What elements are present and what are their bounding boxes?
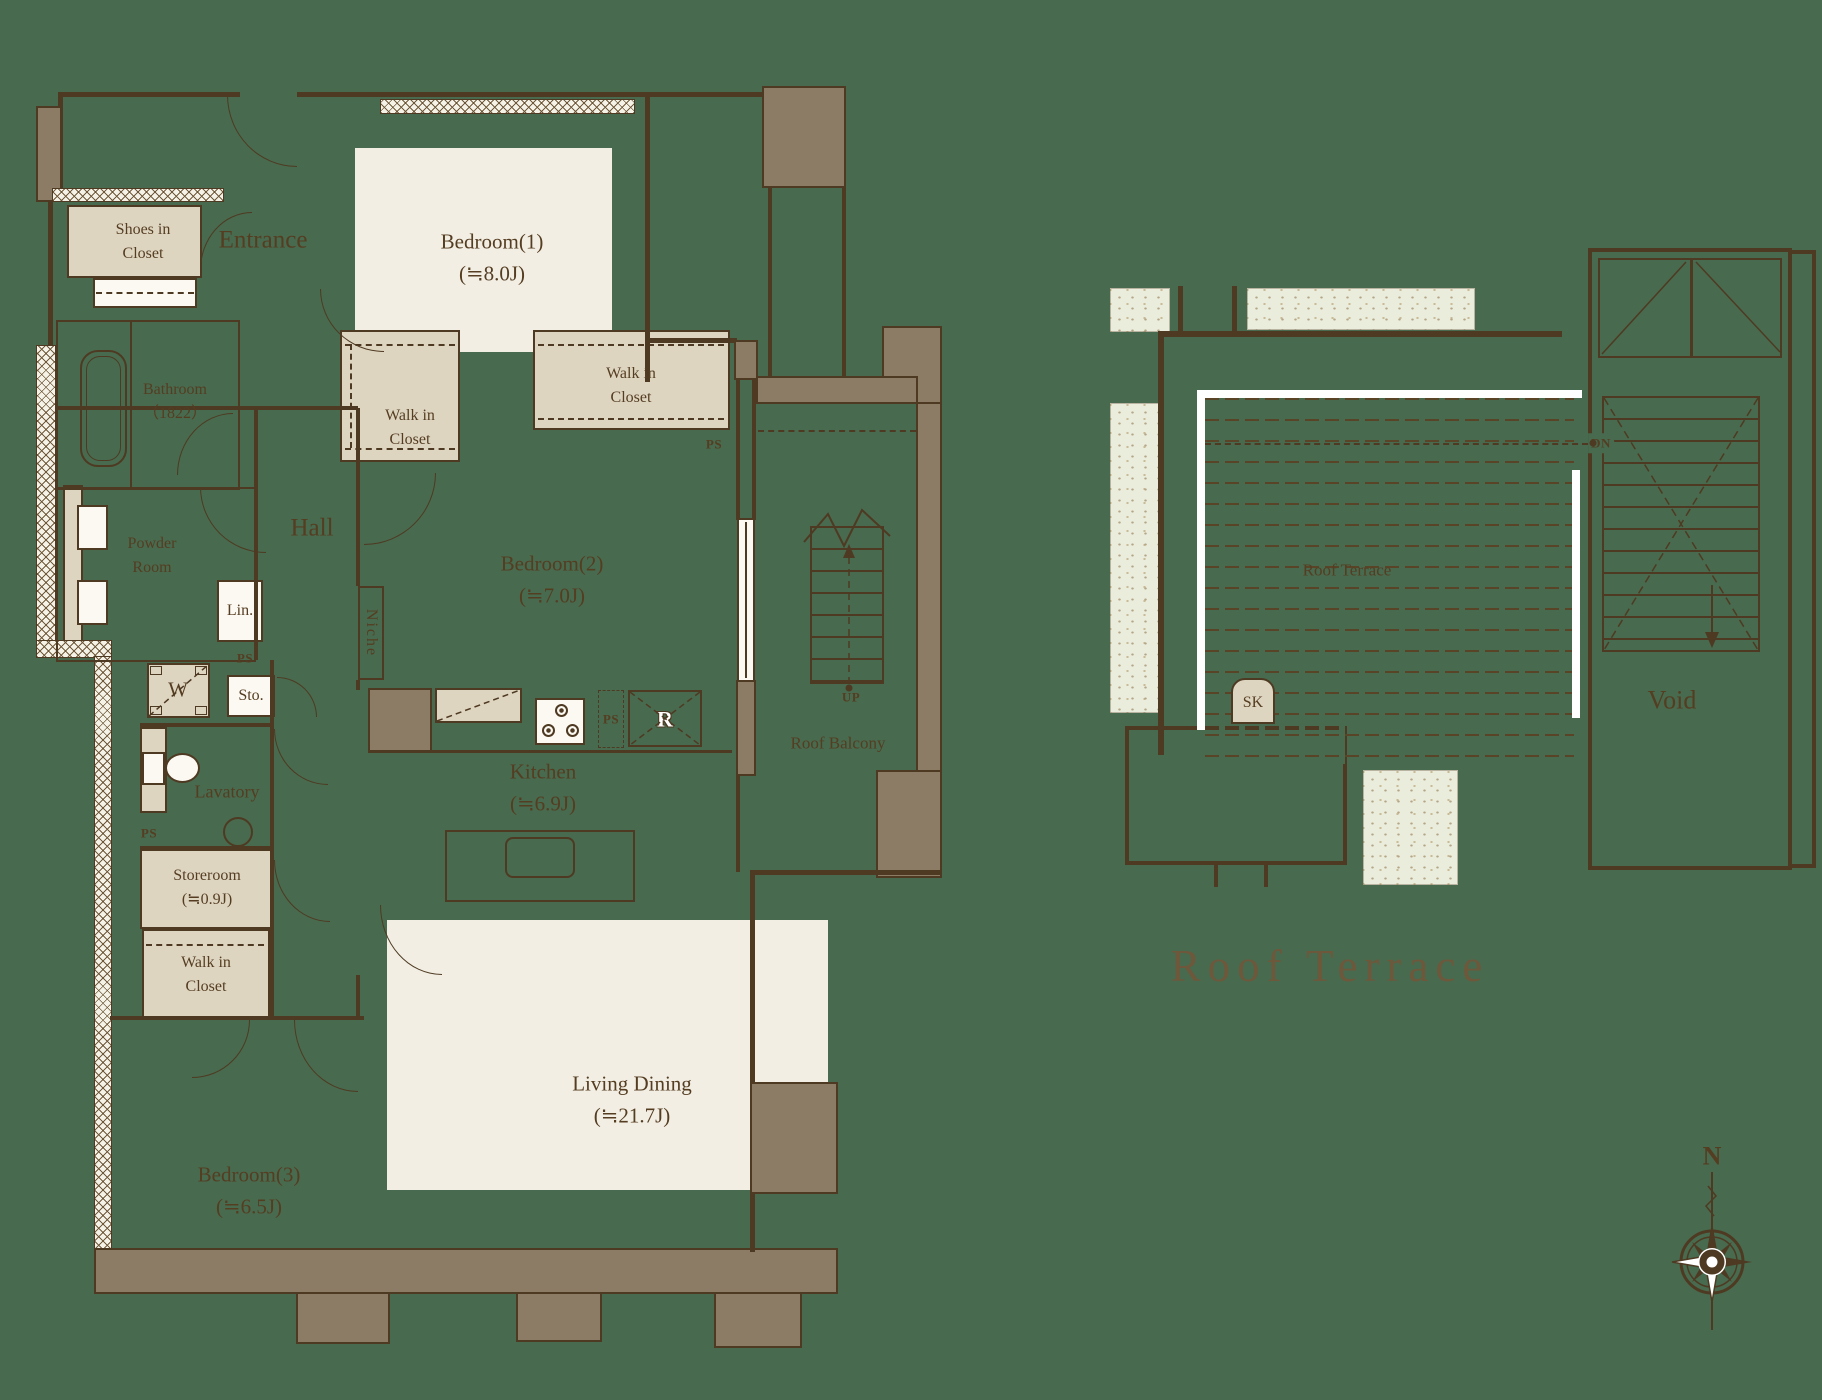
wall-segment: [750, 872, 755, 1252]
wall-segment: [768, 186, 772, 378]
door-arc-bedroom3: [294, 1020, 358, 1092]
planter: [1110, 403, 1163, 713]
shoes-closet-label: Shoes in Closet: [116, 218, 171, 266]
pillar-top-right: [762, 86, 846, 188]
washer-corner: [150, 666, 162, 675]
planter: [1110, 288, 1170, 332]
ps-wic-label: PS: [706, 434, 722, 454]
window-strip-porch: [52, 188, 224, 202]
powder-room-label: Powder Room: [128, 532, 177, 580]
entrance-label: Entrance: [219, 221, 308, 259]
wall-segment: [752, 380, 756, 520]
lavatory-label: Lavatory: [195, 779, 260, 806]
ps-kitchen-label: PS: [603, 709, 619, 729]
lavatory-sink: [223, 817, 253, 847]
compass-rose-icon: [1672, 1172, 1752, 1330]
roof-terrace-small-label: Roof Terrace: [1303, 557, 1392, 583]
wall-segment: [297, 92, 650, 97]
roof-wall-stub: [1178, 286, 1183, 331]
bathroom-label: Bathroom （1822）: [143, 378, 207, 426]
window-mullion: [745, 522, 747, 678]
kitchen-wall-block: [368, 688, 432, 752]
roof-balcony-label: Roof Balcony: [791, 730, 886, 756]
wall-segment: [645, 338, 737, 343]
wall-bottom-band: [94, 1248, 838, 1294]
burner-icon: [566, 724, 579, 737]
wall-segment: [58, 92, 240, 97]
toilet-tank: [142, 752, 165, 785]
burner-icon: [542, 724, 555, 737]
balcony-stairs: [810, 526, 884, 684]
burner-icon: [555, 704, 568, 717]
storage-label: Sto.: [238, 684, 263, 708]
door-arc-bedroom1: [320, 289, 384, 352]
door-arc-lavatory: [274, 729, 328, 785]
pillar-bottom-right: [750, 1082, 838, 1194]
refrigerator-label: R: [657, 703, 673, 736]
deck-border-right: [1572, 470, 1580, 718]
wall-segment: [645, 92, 765, 97]
wic-bottom-label: Walk in Closet: [181, 951, 231, 999]
wall-segment: [130, 322, 132, 488]
wall-segment: [1812, 252, 1816, 868]
wic-right-label: Walk in Closet: [606, 362, 656, 410]
window-strip-top: [380, 99, 635, 114]
closet-rail: [538, 418, 724, 420]
balcony-wall-top: [756, 376, 918, 404]
pillar-stub: [714, 1292, 802, 1348]
roof-wall-top: [1162, 331, 1562, 337]
closet-rail: [350, 344, 352, 448]
dn-leader-dashed: [1205, 443, 1588, 445]
wall-block: [734, 340, 758, 380]
roof-door-post: [1214, 865, 1218, 887]
bedroom2-label: Bedroom(2) (≒7.0J): [501, 549, 604, 612]
deck-border-left: [1197, 390, 1205, 730]
wall-segment: [356, 680, 360, 690]
roof-door-post: [1264, 865, 1268, 887]
void-label: Void: [1648, 681, 1697, 720]
washer-corner: [195, 706, 207, 715]
door-arc-entrance: [227, 95, 297, 167]
door-arc-sto: [277, 677, 317, 717]
roof-wall-stub: [1232, 286, 1237, 331]
wall-segment: [356, 975, 360, 1020]
wall-segment: [1792, 864, 1816, 868]
wall-segment: [736, 776, 740, 872]
roof-terrace-title: Roof Terrace: [1171, 940, 1490, 992]
bedroom1-label: Bedroom(1) (≒8.0J): [441, 227, 544, 290]
ps-hall-label: PS: [237, 648, 253, 668]
up-label: UP: [842, 687, 860, 707]
wall-segment: [140, 723, 274, 727]
roof-wall-left: [1158, 331, 1164, 755]
wic-left-label: Walk in Closet: [385, 404, 435, 452]
wall-segment: [1690, 258, 1693, 358]
storeroom-label: Storeroom (≒0.9J): [173, 864, 241, 912]
planter: [1247, 288, 1475, 330]
roof-sink-label: SK: [1243, 691, 1263, 715]
living-dining-label: Living Dining (≒21.7J): [572, 1069, 692, 1132]
wall-segment: [140, 846, 274, 850]
hall-label: Hall: [290, 509, 333, 547]
door-arc-bedroom3-wic: [192, 1020, 250, 1078]
roof-stairs: [1602, 396, 1760, 652]
window-strip-left-upper: [36, 345, 56, 643]
bedroom3-label: Bedroom(3) (≒6.5J): [198, 1160, 301, 1223]
ps-lavatory-label: PS: [141, 823, 157, 843]
deck-border-top: [1197, 390, 1582, 398]
planter: [1363, 770, 1458, 885]
niche-label: Niche: [359, 609, 383, 657]
window-strip-left-lower: [94, 656, 112, 1260]
washer-corner: [150, 706, 162, 715]
bathtub: [80, 350, 127, 467]
linen-label: Lin.: [227, 599, 253, 623]
island-sink: [505, 837, 575, 878]
floorplan-canvas: Shoes in Closet Entrance Bedroom(1) (≒8.…: [0, 0, 1822, 1400]
wall-segment: [1792, 250, 1816, 254]
cabinet-divider: [96, 292, 194, 294]
pillar-stub: [516, 1292, 602, 1342]
balcony-boundary-dashed: [758, 430, 916, 432]
washer-label: W: [168, 674, 188, 706]
wall-segment: [736, 380, 740, 520]
wall-segment: [48, 200, 53, 350]
dn-label: DN: [1588, 433, 1614, 453]
kitchen-label: Kitchen (≒6.9J): [510, 757, 576, 820]
bathtub-inner: [86, 356, 121, 461]
stove: [535, 698, 585, 745]
pillar-stub: [296, 1292, 390, 1344]
closet-rail: [146, 944, 264, 946]
wall-segment: [356, 408, 360, 586]
door-arc-bedroom2: [364, 473, 436, 545]
wall-segment: [750, 870, 942, 875]
door-arc-storeroom: [274, 860, 330, 922]
kitchen-counter: [435, 688, 522, 723]
closet-rail: [538, 344, 724, 346]
washer-corner: [195, 666, 207, 675]
wall-segment: [270, 660, 274, 1020]
wall-block: [736, 680, 756, 776]
compass-north-label: N: [1703, 1137, 1722, 1176]
balcony-pillar-bottom: [876, 770, 942, 878]
wall-segment: [842, 186, 846, 378]
